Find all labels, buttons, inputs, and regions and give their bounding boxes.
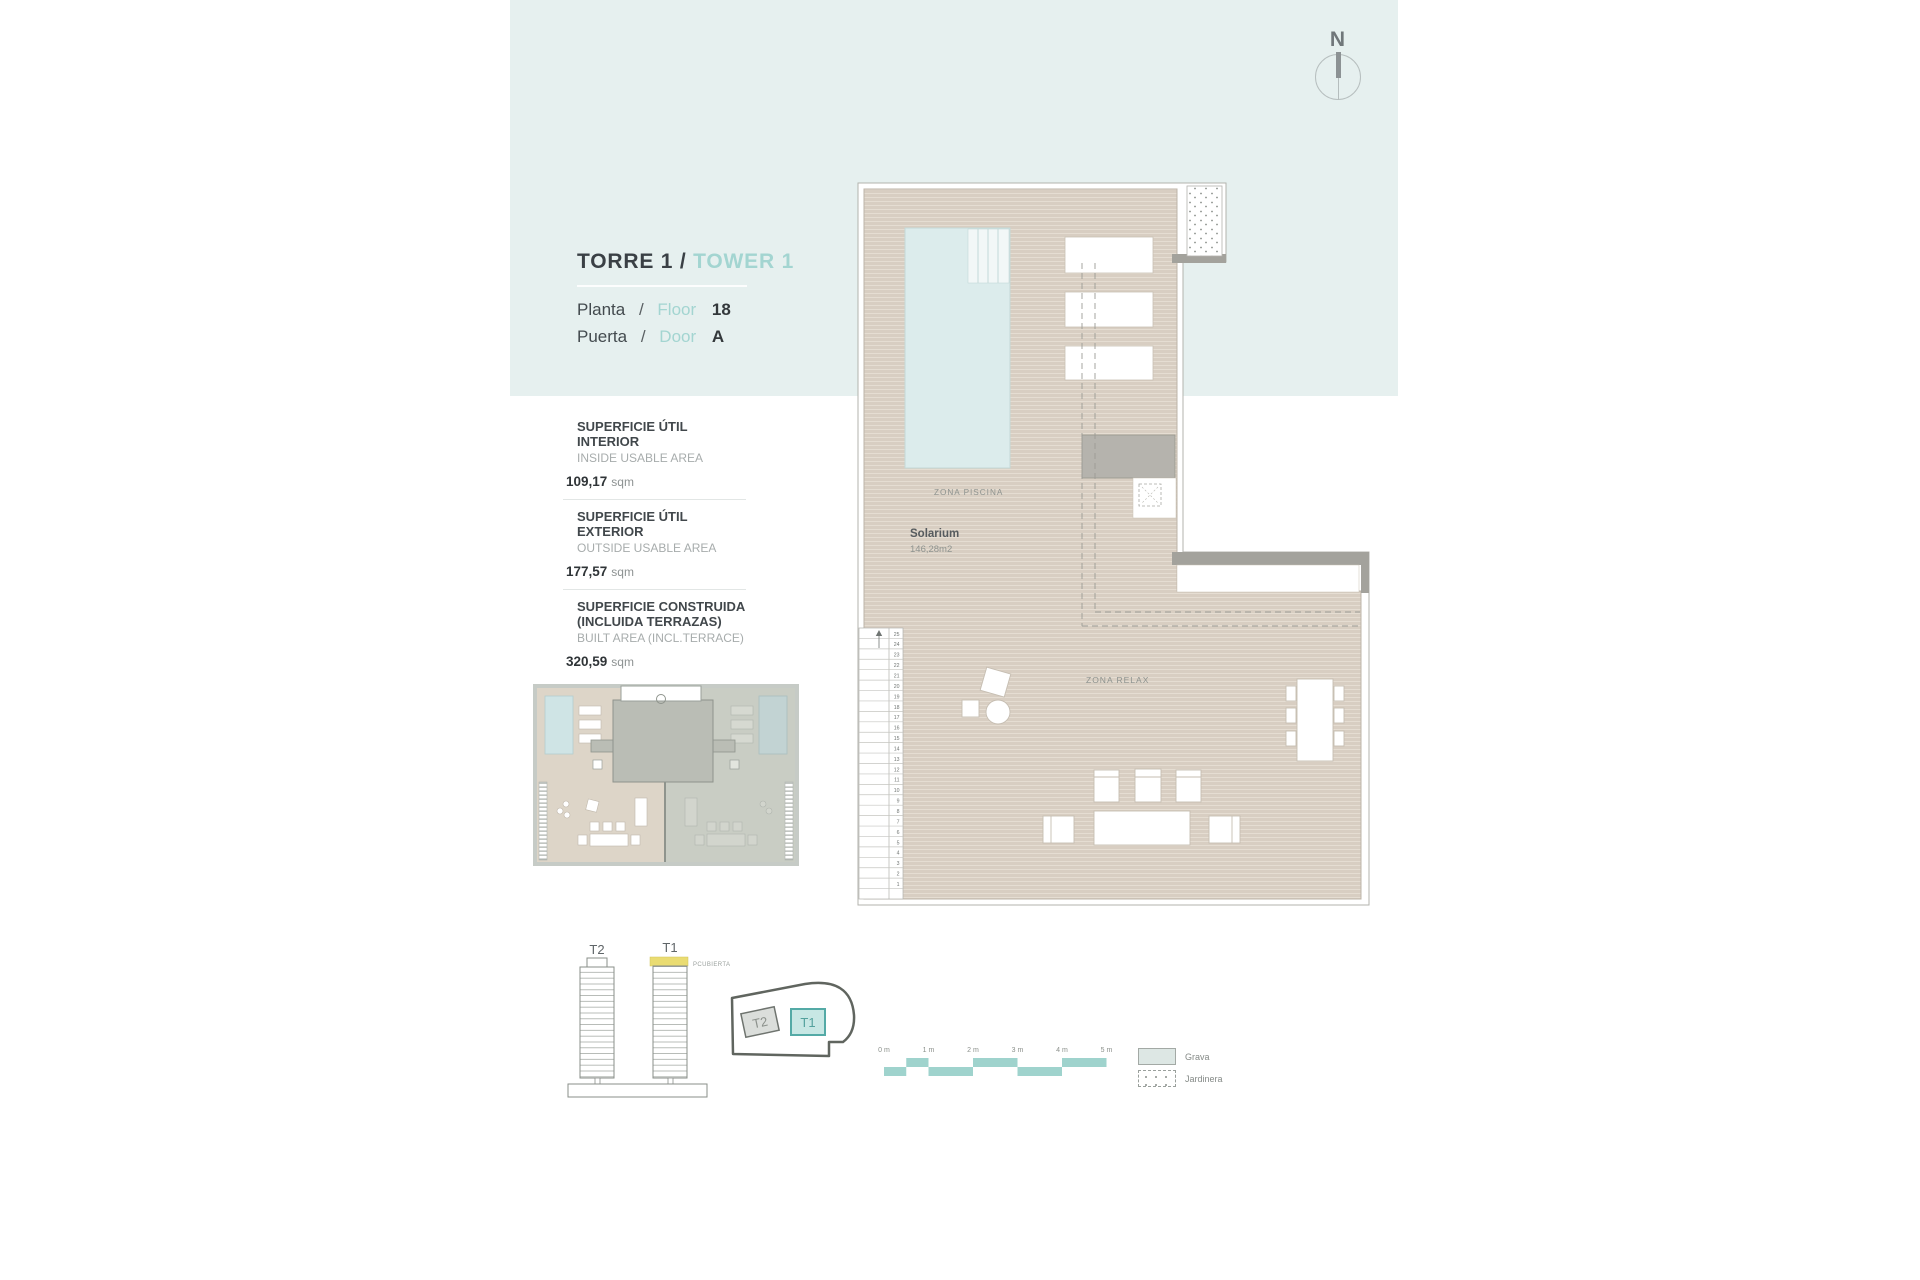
zona-piscina-label: ZONA PISCINA [934,488,1003,497]
area-unit: sqm [611,655,634,669]
north-compass-icon: N [1312,28,1364,100]
zona-relax-label: ZONA RELAX [1086,675,1149,685]
legend-item-grava: Grava [1138,1048,1223,1065]
floor-row: Planta / Floor 18 [577,300,807,320]
area-title-en: INSIDE USABLE AREA [577,451,746,465]
floor-value: 18 [712,300,731,319]
scale-bar: 0 m1 m2 m3 m4 m5 m [876,1043,1121,1083]
t1-tower-body [653,966,687,1078]
scale-tick-label: 5 m [1101,1047,1113,1054]
stair-number: 23 [894,653,900,659]
site-plan: T2 T1 [723,971,873,1081]
separator: / [641,327,646,346]
stair-number: 5 [897,840,900,846]
t1-stem [668,1078,673,1084]
stair-number: 21 [894,674,900,680]
scale-tick-label: 3 m [1012,1047,1024,1054]
stair-number: 14 [894,746,900,752]
keyplan-sunbeds-left [579,706,601,743]
stair-number: 20 [894,684,900,690]
jardinera-swatch [1138,1070,1176,1087]
keyplan-skylight-right [730,760,739,769]
site-t1-label: T1 [800,1015,815,1030]
scale-segment [1062,1058,1107,1067]
door-value: A [712,327,724,346]
stair-number: 17 [894,715,900,721]
stair-number: 10 [894,788,900,794]
area-entry-exterior: SUPERFICIE ÚTIL EXTERIOR OUTSIDE USABLE … [563,500,746,590]
title-block: TORRE 1 / TOWER 1 Planta / Floor 18 Puer… [577,250,807,347]
title-divider [577,285,747,287]
scale-tick-label: 4 m [1056,1047,1068,1054]
grava-swatch [1138,1048,1176,1065]
legend-item-jardinera: Jardinera [1138,1070,1223,1087]
stair-number: 16 [894,726,900,732]
stair-number: 7 [897,819,900,825]
core-block [1082,435,1175,478]
keyplan-sunbeds-right [731,706,753,743]
compass-needle-tail [1338,78,1339,100]
keyplan-core [613,700,713,782]
site-t2-label: T2 [751,1014,769,1032]
stair-number: 11 [894,778,899,784]
keyplan-pool-left [545,696,573,754]
map-legend: Grava Jardinera [1138,1048,1223,1092]
area-unit: sqm [611,475,634,489]
area-unit: sqm [611,565,634,579]
sun-loungers [1065,237,1153,380]
stair-number: 9 [897,799,900,805]
stair-number: 15 [894,736,900,742]
area-number: 109,17 [566,474,607,489]
stair-number: 1 [897,882,900,888]
scale-segments [884,1058,1107,1076]
stair-number: 8 [897,809,900,815]
notch-white [1177,565,1359,592]
podium-base [568,1084,707,1097]
wall-segment-notch [1172,552,1369,565]
area-entry-built: SUPERFICIE CONSTRUIDA (INCLUIDA TERRAZAS… [563,590,746,679]
area-value: 109,17sqm [566,474,746,489]
legend-label: Jardinera [1185,1074,1223,1084]
coffee-table [1094,811,1190,845]
stair-number: 6 [897,830,900,836]
keyplan-planter-left [539,782,547,860]
title-en: TOWER 1 [693,250,794,273]
t1-roof-highlight [650,957,688,966]
t2-stem [595,1078,600,1084]
armchair [1135,769,1161,802]
tower-t1-label: T1 [662,940,677,955]
key-plan-thumbnail [533,684,799,866]
armchair [1176,770,1201,802]
page-title: TORRE 1 / TOWER 1 [577,250,807,274]
side-table-square [962,700,979,717]
stair-number: 19 [894,694,900,700]
site-t1-block: T1 [791,1009,825,1035]
tower-elevations: T2 T1 PCUBIERTA [555,938,735,1100]
area-title-en: BUILT AREA (INCL.TERRACE) [577,631,746,645]
scale-segment [929,1067,974,1076]
door-row: Puerta / Door A [577,327,807,347]
stair-number: 13 [894,757,900,763]
armchair [1094,770,1119,802]
scale-labels: 0 m1 m2 m3 m4 m5 m [878,1047,1112,1054]
lounge-seat-right [1209,816,1240,843]
floor-label-es: Planta [577,300,625,319]
door-label-es: Puerta [577,327,627,346]
compass-needle [1336,52,1341,78]
stair-number: 25 [894,632,900,638]
planter-jardinera [1187,186,1222,256]
scale-segment [906,1058,928,1067]
area-value: 177,57sqm [566,564,746,579]
area-entry-interior: SUPERFICIE ÚTIL INTERIOR INSIDE USABLE A… [563,410,746,500]
area-number: 320,59 [566,654,607,669]
scale-tick-label: 0 m [878,1047,890,1054]
round-table [986,700,1010,724]
stair-number: 2 [897,872,900,878]
area-title-en: OUTSIDE USABLE AREA [577,541,746,555]
title-es: TORRE 1 / [577,250,687,273]
separator: / [639,300,644,319]
north-label: N [1312,28,1364,52]
scale-tick-label: 2 m [967,1047,979,1054]
keyplan-top-block [621,686,701,701]
areas-table: SUPERFICIE ÚTIL INTERIOR INSIDE USABLE A… [563,410,746,679]
scale-tick-label: 1 m [923,1047,935,1054]
solarium-area: 146,28m2 [910,544,952,555]
area-title-es: SUPERFICIE ÚTIL EXTERIOR [577,509,746,539]
compass-circle [1315,54,1361,100]
area-title-es: SUPERFICIE ÚTIL INTERIOR [577,419,746,449]
area-title-es: SUPERFICIE CONSTRUIDA [577,599,746,614]
tower-t2-label: T2 [589,942,604,957]
area-number: 177,57 [566,564,607,579]
keyplan-pool-right [759,696,787,754]
stair-number: 3 [897,861,900,867]
stairs: 2524232221201918171615141312111098765432… [859,628,903,899]
keyplan-skylight-left [593,760,602,769]
lounge-seat-left [1043,816,1074,843]
keyplan-divider [664,782,666,862]
scale-segment [973,1058,1018,1067]
area-value: 320,59sqm [566,654,746,669]
stair-number: 12 [894,767,900,773]
keyplan-core-arm-right [713,740,735,752]
skylight [1139,484,1161,506]
stair-number: 18 [894,705,900,711]
keyplan-planter-right [785,782,793,860]
scale-segment [884,1067,906,1076]
dining-table [1297,679,1333,761]
scale-segment [1018,1067,1063,1076]
area-title-es-line2: (INCLUIDA TERRAZAS) [577,614,746,629]
stair-number: 22 [894,663,900,669]
t2-tower-body [580,967,614,1078]
wall-segment-corner [1361,553,1369,593]
t2-roof-cap [587,958,607,967]
roof-level-label: PCUBIERTA [693,962,730,968]
main-floor-plan: 2524232221201918171615141312111098765432… [857,182,1372,906]
pool-steps [968,229,1009,283]
legend-label: Grava [1185,1052,1210,1062]
plan-sheet: N TORRE 1 / TOWER 1 Planta / Floor 18 Pu… [0,0,1920,1280]
keyplan-core-arm-left [591,740,613,752]
door-label-en: Door [659,327,696,346]
stair-number: 4 [897,851,900,857]
floor-label-en: Floor [657,300,696,319]
stair-number: 24 [894,642,900,648]
solarium-label: Solarium [910,528,959,540]
